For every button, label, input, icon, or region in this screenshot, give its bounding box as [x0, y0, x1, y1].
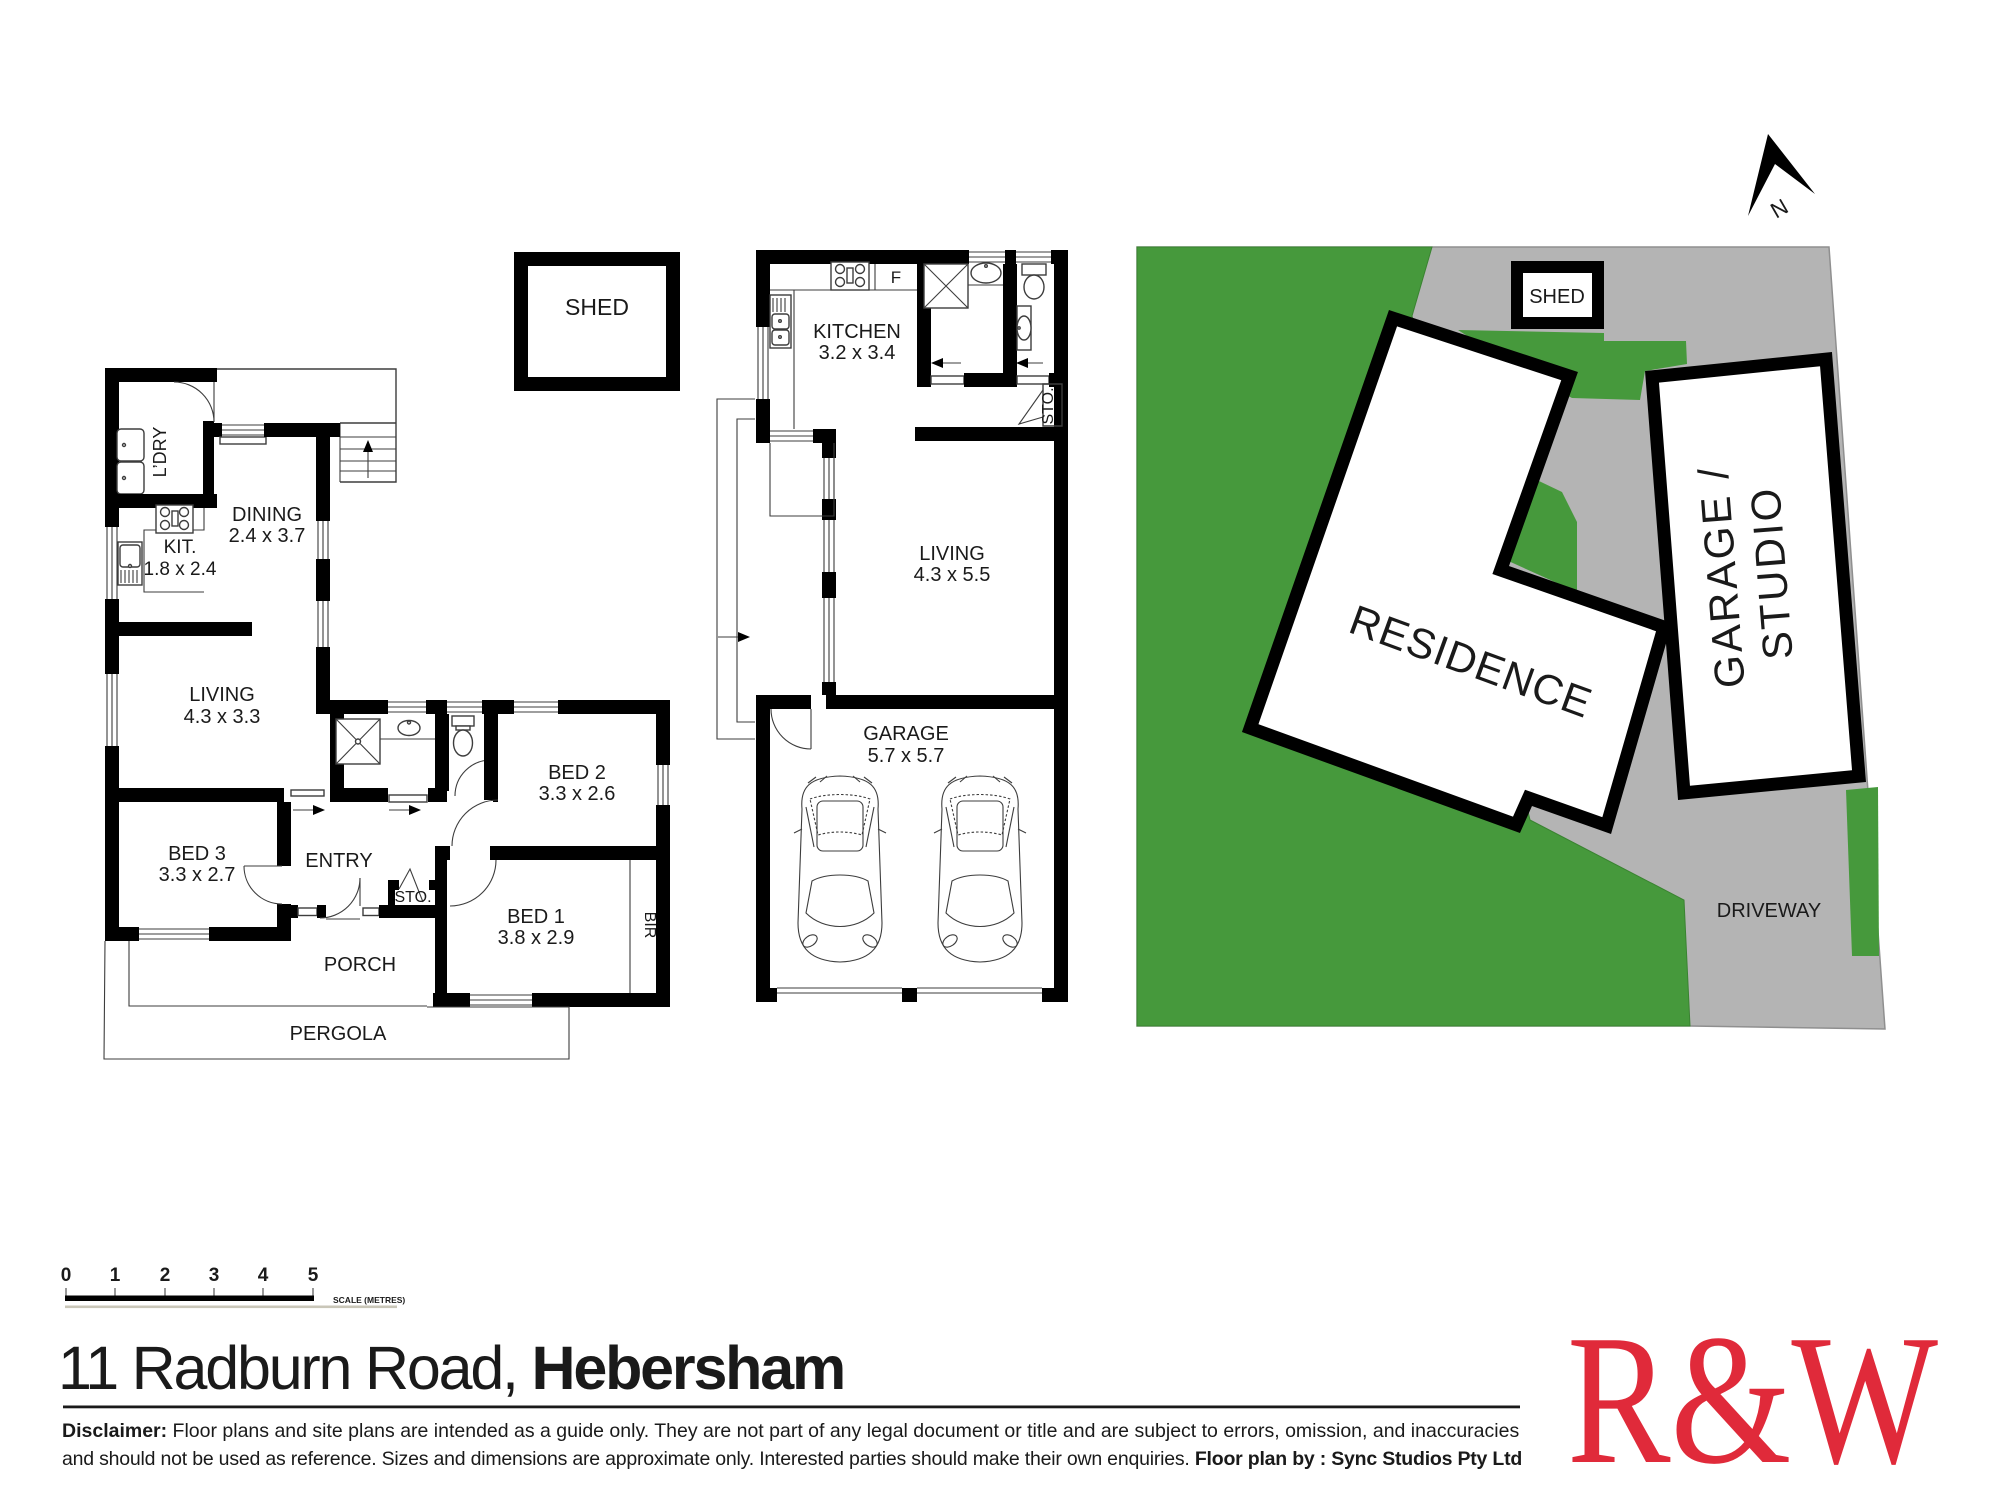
svg-text:PORCH: PORCH — [324, 954, 396, 976]
svg-text:SHED: SHED — [1529, 286, 1585, 308]
svg-text:4.3 x 5.5: 4.3 x 5.5 — [914, 564, 991, 586]
svg-text:SHED: SHED — [565, 294, 629, 320]
svg-text:5.7 x 5.7: 5.7 x 5.7 — [868, 745, 945, 767]
svg-text:PERGOLA: PERGOLA — [290, 1023, 387, 1045]
svg-text:BED 2: BED 2 — [548, 762, 606, 784]
svg-text:KITCHEN: KITCHEN — [813, 321, 901, 343]
svg-text:1: 1 — [110, 1265, 121, 1286]
svg-text:DRIVEWAY: DRIVEWAY — [1717, 900, 1821, 922]
svg-text:Disclaimer: Floor plans and si: Disclaimer: Floor plans and site plans a… — [62, 1420, 1519, 1442]
svg-text:4.3 x 3.3: 4.3 x 3.3 — [184, 706, 261, 728]
svg-text:3.8 x 2.9: 3.8 x 2.9 — [498, 927, 575, 949]
svg-text:1.8 x 2.4: 1.8 x 2.4 — [144, 559, 217, 580]
svg-text:R&W: R&W — [1567, 1297, 1938, 1500]
svg-text:KIT.: KIT. — [164, 537, 197, 558]
svg-text:2: 2 — [160, 1265, 171, 1286]
svg-text:2.4 x 3.7: 2.4 x 3.7 — [229, 525, 306, 547]
svg-text:3.3 x 2.7: 3.3 x 2.7 — [159, 864, 236, 886]
svg-text:F: F — [891, 268, 901, 287]
svg-text:BED 1: BED 1 — [507, 906, 565, 928]
svg-text:0: 0 — [61, 1265, 72, 1286]
svg-text:LIVING: LIVING — [189, 684, 255, 706]
svg-text:STO.: STO. — [1040, 387, 1057, 424]
svg-text:LIVING: LIVING — [919, 543, 985, 565]
svg-text:3.3 x 2.6: 3.3 x 2.6 — [539, 783, 616, 805]
svg-text:SCALE (METRES): SCALE (METRES) — [333, 1295, 405, 1305]
svg-text:4: 4 — [258, 1265, 269, 1286]
svg-text:5: 5 — [308, 1265, 319, 1286]
svg-text:GARAGE: GARAGE — [863, 723, 949, 745]
svg-text:BIR: BIR — [641, 912, 658, 939]
svg-text:BED 3: BED 3 — [168, 843, 226, 865]
svg-text:11 Radburn Road, Hebersham: 11 Radburn Road, Hebersham — [58, 1334, 844, 1402]
svg-text:and should not be used as refe: and should not be used as reference. Siz… — [62, 1448, 1522, 1470]
svg-text:ENTRY: ENTRY — [305, 850, 372, 872]
svg-text:3.2 x 3.4: 3.2 x 3.4 — [819, 342, 896, 364]
svg-text:3: 3 — [209, 1265, 220, 1286]
svg-text:STO.: STO. — [394, 889, 431, 906]
svg-text:L’DRY: L’DRY — [150, 427, 170, 478]
svg-text:DINING: DINING — [232, 504, 302, 526]
